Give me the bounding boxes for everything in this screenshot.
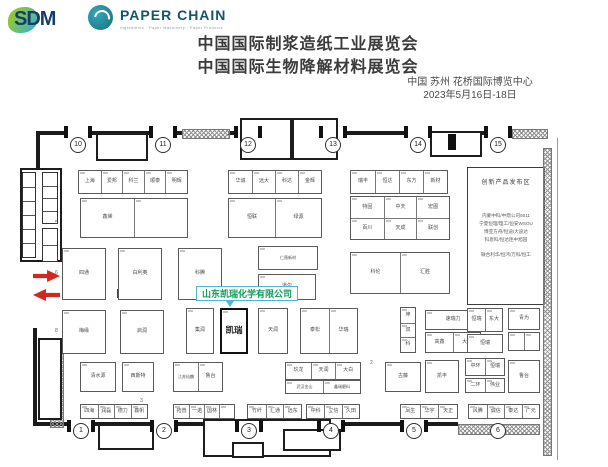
structure-room <box>98 424 154 450</box>
floorplan: 山东凯瑞化学有限公司 创新产品发布区 内蒙中科/中鼎公司5011宁夏恒理/理工/… <box>0 110 608 467</box>
door-pier <box>259 420 263 432</box>
door-pier <box>484 126 488 138</box>
paper-chain-swirl-icon <box>88 5 113 30</box>
small-stalls-column <box>42 228 58 262</box>
booth: 二环伟业 <box>465 378 505 393</box>
gate-number-bottom: 1 <box>73 423 89 439</box>
launch-area: 创新产品发布区 内蒙中科/中鼎公司5011宁夏恒理/理工/恒安WSOU博亚方舟/… <box>467 167 545 305</box>
structure-room <box>430 131 482 157</box>
booth: 泰松华瑞 <box>300 308 358 354</box>
door-pier <box>428 126 432 138</box>
hatched-wall <box>543 148 552 456</box>
door-pier <box>91 420 95 432</box>
launch-area-line: 宁夏恒理/理工/恒安WSOU <box>471 220 541 227</box>
booth: 凯丰 <box>425 360 459 393</box>
booth: 西斯特 <box>122 362 154 392</box>
booth: 恒瑞东大 <box>467 308 503 332</box>
gate-number-bottom: 4 <box>323 423 339 439</box>
callout-pointer-icon <box>226 301 234 307</box>
booth: 恒瑞 <box>467 334 503 353</box>
door-pier <box>404 126 408 138</box>
aisle-number: 8 <box>55 328 58 334</box>
booth: 鑫烯 <box>80 198 188 238</box>
gate-number-bottom: 6 <box>490 423 506 439</box>
door-pier <box>317 420 321 432</box>
paper-chain-tagline: Ingredients · Paper Machinery · Paper Pr… <box>120 25 226 30</box>
wall-segment <box>33 328 37 426</box>
booth: 鲁台 <box>508 360 540 393</box>
small-stalls-column <box>42 172 58 224</box>
right-boundary-line <box>557 138 558 460</box>
door-pier <box>343 126 347 138</box>
exhibition-floorplan-page: SDM PAPER CHAIN Ingredients · Paper Mach… <box>0 0 608 467</box>
gate-number-top: 10 <box>70 137 86 153</box>
hatched-wall <box>182 129 230 139</box>
sdm-logo-text: SDM <box>14 8 55 31</box>
gate-number-top: 12 <box>240 137 256 153</box>
booth <box>508 332 540 351</box>
wall-segment <box>426 422 458 426</box>
expo-title-1: 中国国际制浆造纸工业展览会 <box>168 33 448 56</box>
door-pier <box>173 126 177 138</box>
gate-number-bottom: 5 <box>406 423 422 439</box>
dates-text: 2023年5月16日-18日 <box>380 89 560 102</box>
gate-number-top: 11 <box>155 137 171 153</box>
hatched-wall <box>512 129 548 139</box>
structure-room <box>38 338 62 420</box>
booth: 特固中天宏图百川天成联创 <box>350 196 450 240</box>
door-pier <box>234 126 238 138</box>
door-pier <box>424 420 428 432</box>
booth: 集润 <box>186 308 214 354</box>
door-pier <box>508 126 512 138</box>
booth: 武汉金山鑫瑞磨料 <box>285 380 361 394</box>
door-pier <box>150 420 154 432</box>
wall-block <box>448 134 456 150</box>
gate-number-bottom: 3 <box>241 423 257 439</box>
entrance-arrow-left-icon <box>33 289 60 301</box>
structure-room <box>232 442 264 458</box>
booth: 江苏仙麟鲁台 <box>173 362 223 392</box>
door-pier <box>174 420 178 432</box>
door-pier <box>88 126 92 138</box>
door-pier <box>64 126 68 138</box>
booth: 中科立信久田 <box>306 404 360 419</box>
wall-segment <box>36 131 64 135</box>
door-pier <box>235 420 239 432</box>
booth: 中环恒瑞 <box>465 358 505 376</box>
booth: 青为 <box>508 308 540 330</box>
wall-segment <box>343 422 400 426</box>
door-pier <box>258 126 262 138</box>
structure-room <box>96 133 148 161</box>
booth: 华诚远大科达金辉 <box>228 170 322 194</box>
gate-number-top: 15 <box>490 137 506 153</box>
launch-area-line: 内蒙中科/中鼎公司5011 <box>471 212 541 219</box>
door-pier <box>67 420 71 432</box>
paper-chain-logo-text: PAPER CHAIN <box>120 7 226 23</box>
door-pier <box>400 420 404 432</box>
booth: 白利奥 <box>118 248 162 300</box>
launch-area-title: 创新产品发布区 <box>468 177 544 186</box>
title-block: 中国国际制浆造纸工业展览会 中国国际生物降解材料展览会 <box>168 33 448 79</box>
booth: 上海爱邦科兰顺泰明辉 <box>78 170 188 194</box>
booth: 科伦汇胜 <box>350 252 450 294</box>
venue-text: 中国 苏州 花桥国际博览中心 <box>380 76 560 89</box>
booth: 玖龙天润大白 <box>285 362 361 380</box>
launch-area-lines: 内蒙中科/中鼎公司5011宁夏恒理/理工/恒安WSOU博亚方舟/恒迪/大迪达科恩… <box>468 212 544 259</box>
booth: 四海润磊德力鑫帆 <box>80 404 148 419</box>
door-pier <box>341 420 345 432</box>
booth: 梅缘 <box>62 310 106 354</box>
small-stalls-column <box>22 172 36 258</box>
booth: 天润 <box>258 308 288 354</box>
launch-area-line: 联合利华/恒鸿/万科/恒工 <box>471 251 541 258</box>
venue-block: 中国 苏州 花桥国际博览中心 2023年5月16日-18日 <box>380 76 560 102</box>
booth: 竹纤汇通远东 <box>247 404 302 419</box>
gate-number-top: 13 <box>325 137 341 153</box>
launch-area-line: 科恩科/恒达连中旭园 <box>471 236 541 243</box>
aisle-number: 6 <box>55 270 58 276</box>
booth: 古藤 <box>385 362 421 392</box>
gate-number-top: 14 <box>410 137 426 153</box>
booth: 恒联绿源 <box>228 198 322 238</box>
door-pier <box>319 126 323 138</box>
booth: 瑞丰恒达东方新材 <box>350 170 448 194</box>
booth: 仁薇新材 <box>258 246 318 270</box>
booth: 风腾诚信泰达广元 <box>468 404 540 419</box>
booth: 坤双科 <box>400 307 416 353</box>
sdm-logo: SDM <box>8 4 74 36</box>
gate-number-bottom: 2 <box>156 423 172 439</box>
booth: 启润 <box>120 310 164 354</box>
aisle-number: 2 <box>370 360 373 366</box>
door-pier <box>149 126 153 138</box>
booth-kairui-highlighted: 凯瑞 <box>220 308 248 354</box>
wall-segment <box>345 131 404 135</box>
booth: 四通 <box>62 248 106 300</box>
booth: 凤生华宇天正 <box>400 404 458 419</box>
booth: 清水源 <box>80 362 116 392</box>
highlight-callout: 山东凯瑞化学有限公司 <box>196 286 298 301</box>
launch-area-line: 博亚方舟/恒迪/大迪达 <box>471 228 541 235</box>
booth: 拓普一诺国林 <box>173 404 235 419</box>
aisle-number: 5 <box>55 220 58 226</box>
